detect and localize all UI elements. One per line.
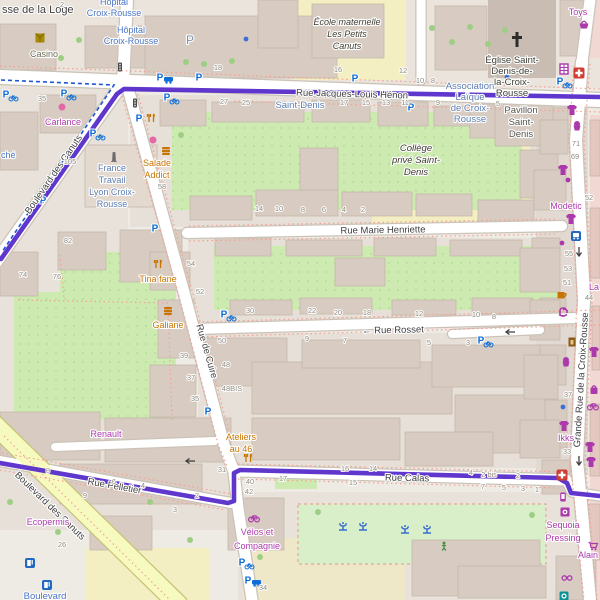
bakery-icon [574, 121, 581, 131]
building [215, 238, 271, 256]
map-label: Pavillon [504, 105, 537, 116]
building [286, 240, 362, 256]
map-label: France [98, 163, 126, 173]
map-label: Rousse [496, 88, 528, 99]
house-number: 8 [431, 76, 435, 85]
parking-icon: P [196, 73, 203, 84]
house-number: 40 [246, 477, 254, 486]
tree [76, 37, 82, 43]
house-number: 12 [415, 309, 423, 318]
house-number: 22 [308, 306, 316, 315]
house-number: 2 [195, 491, 199, 500]
building [592, 306, 600, 370]
house-number: 6 [322, 205, 326, 214]
svg-text:P: P [136, 114, 143, 125]
bakery-icon [563, 357, 570, 367]
map-label: Travail [99, 175, 126, 185]
tree [178, 132, 184, 138]
map-label: Denis-de- [491, 66, 532, 77]
house-number: 8 [46, 466, 50, 475]
house-number: 3 [466, 338, 470, 347]
house-number: 14 [255, 204, 263, 213]
house-number: 4 [342, 205, 346, 214]
tree [449, 39, 455, 45]
map-label: Denis [509, 129, 534, 140]
building [590, 120, 600, 176]
beauty-shop-icon [59, 104, 66, 111]
house-number: 42 [245, 487, 253, 496]
house-number: 105 [64, 157, 77, 166]
house-number: 5 [427, 338, 431, 347]
house-number: 15 [362, 98, 370, 107]
building [300, 148, 338, 190]
svg-text:P: P [205, 407, 212, 418]
map-label: Croix-Rousse [104, 36, 159, 46]
map-label: Les Petits [327, 29, 367, 39]
house-number: 34 [259, 583, 267, 592]
house-number: 5 [496, 99, 500, 108]
fast-food-icon [162, 147, 170, 155]
tree [257, 554, 263, 560]
building [472, 298, 532, 314]
house-number: 74 [19, 270, 27, 279]
map-label: Rousse [454, 114, 486, 125]
tree [485, 41, 491, 47]
tree [7, 499, 13, 505]
house-number: 4 [469, 468, 473, 477]
house-number: 2 [516, 471, 520, 480]
building [252, 362, 452, 414]
house-number: 10 [416, 76, 424, 85]
tree [229, 58, 235, 64]
tree [315, 509, 321, 515]
house-number: 33 [563, 447, 571, 456]
map-label: Hôpital [100, 0, 128, 7]
traffic-signal-icon [133, 99, 137, 108]
map-label: Ikks [558, 433, 575, 443]
map-label: Salade [143, 158, 171, 168]
charging-station-icon [25, 558, 35, 568]
parking-icon: P [152, 224, 159, 235]
house-number: 44 [585, 293, 593, 302]
tree [467, 24, 473, 30]
house-number: 31 [218, 465, 226, 474]
furniture-shop-icon [560, 64, 568, 74]
building [230, 300, 292, 315]
house-number: 9 [436, 98, 440, 107]
map-label: École maternelle [313, 17, 380, 27]
building [0, 112, 38, 170]
house-number: 35 [38, 94, 46, 103]
tree [183, 59, 189, 65]
beauty-shop-icon [150, 137, 157, 144]
fast-food-icon [164, 307, 172, 315]
tree [55, 529, 61, 535]
tree [58, 55, 64, 61]
house-number: 53 [564, 264, 572, 273]
svg-text:P: P [152, 224, 159, 235]
recycling-icon [560, 592, 569, 600]
bus-stop-icon [571, 231, 581, 241]
map-label: la-Croix- [494, 77, 530, 88]
building [335, 258, 385, 286]
map-label: Ecopermis [27, 517, 70, 527]
service-lane-east [452, 330, 540, 334]
house-number: 2 [361, 205, 365, 214]
house-number: 50 [218, 336, 226, 345]
map-label: Addict [144, 170, 170, 180]
house-number: 25 [242, 98, 250, 107]
house-number: 26 [58, 540, 66, 549]
map-label: Alain R [578, 550, 600, 560]
map-label: Croix-Rousse [87, 8, 142, 18]
house-number: 5 [502, 483, 506, 492]
map-label: Compagnie [234, 541, 280, 551]
building [520, 248, 560, 292]
house-number: 11 [401, 98, 409, 107]
house-number: 9 [305, 334, 309, 343]
laundry-icon [561, 508, 570, 517]
building [302, 340, 420, 368]
map-label: Rousse [97, 199, 128, 209]
house-number: 3 [521, 484, 525, 493]
house-number: 16 [334, 65, 342, 74]
poi-dot-icon [244, 37, 249, 42]
map-label: Canuts [333, 41, 362, 51]
shop-dot-icon [560, 241, 565, 246]
building [0, 24, 56, 70]
map-label: privé Saint- [391, 155, 440, 166]
map-label: Casino [30, 49, 58, 59]
house-number: 76 [53, 272, 61, 281]
map-label: Hôpital [117, 25, 145, 35]
map-label: Pressing [545, 533, 580, 543]
tree [429, 25, 435, 31]
svg-text:P: P [245, 576, 252, 587]
map-label: Carlance [45, 117, 81, 127]
map-label: Denis [404, 167, 429, 178]
map-label: Rue Calas [385, 473, 430, 485]
map-label: au 46 [230, 444, 253, 454]
map-label: P [186, 33, 194, 47]
building [342, 192, 412, 216]
pharmacy-icon [574, 68, 585, 79]
building [435, 6, 487, 70]
house-number: 35 [191, 394, 199, 403]
house-number: 16 [341, 464, 349, 473]
tree [201, 61, 207, 67]
house-number: 10 [275, 204, 283, 213]
house-number: 3 [173, 505, 177, 514]
building [258, 0, 298, 48]
parking-icon: P [136, 114, 143, 125]
house-number: 10 [472, 310, 480, 319]
building [416, 194, 472, 216]
tree [529, 512, 535, 518]
building [252, 418, 400, 460]
house-number: 13 [382, 98, 390, 107]
svg-text:P: P [352, 74, 359, 85]
house-number: 58 [158, 182, 166, 191]
map-label: Sequoia [546, 520, 579, 530]
house-number: 8 [301, 205, 305, 214]
tree [147, 499, 153, 505]
house-number: 12 [399, 66, 407, 75]
house-number: 48BIS [222, 384, 242, 393]
map-label: Laïque [455, 92, 484, 103]
house-number: 27 [220, 97, 228, 106]
shop-door-icon [569, 338, 576, 347]
building [190, 196, 252, 220]
house-number: 52 [196, 287, 204, 296]
map-label: Galiane [152, 320, 183, 330]
house-number: 39 [180, 351, 188, 360]
house-number: 30 [246, 306, 254, 315]
house-number: 37 [564, 390, 572, 399]
poi-dot-icon [561, 405, 566, 410]
svg-text:P: P [157, 73, 164, 84]
house-number: 9 [83, 491, 87, 500]
map-label: de Croix- [451, 103, 490, 114]
building [520, 420, 560, 458]
shop-dot-icon [566, 178, 571, 183]
building [145, 16, 337, 78]
map-label: Toys [569, 7, 588, 17]
house-number: 17 [279, 474, 287, 483]
house-number: 51 [563, 278, 571, 287]
map-label: Ateliers [226, 432, 257, 442]
house-number: 18 [214, 63, 222, 72]
parking-icon: P [352, 74, 359, 85]
building [458, 566, 546, 598]
pharmacy-icon [557, 470, 568, 481]
map-label: Boulevard [24, 591, 67, 600]
building [450, 240, 522, 256]
house-number: 7 [343, 336, 347, 345]
house-number: 55 [565, 249, 573, 258]
map-label: Collège [400, 143, 432, 154]
tree [502, 27, 508, 33]
house-number: 14 [369, 464, 377, 473]
building [392, 300, 456, 315]
map-label: Tina fane [139, 274, 176, 284]
house-number: 54 [187, 259, 195, 268]
house-number: 82 [64, 236, 72, 245]
map-label: Rue Marie Henriette [340, 224, 425, 236]
house-number: 1 [535, 485, 539, 494]
building [524, 355, 558, 399]
tree [187, 537, 193, 543]
charging-station-icon [42, 580, 52, 590]
house-number: 48 [222, 360, 230, 369]
building [590, 208, 600, 278]
house-number: 15 [349, 478, 357, 487]
map-label: ← Rue Rosset [362, 324, 424, 336]
map-label: Renault [90, 429, 122, 439]
house-number: 37 [187, 373, 195, 382]
building [160, 100, 206, 126]
map-label: Saint-Denis [275, 100, 324, 111]
house-number: 20 [334, 308, 342, 317]
map-svg: PPPPPPPPPPPPPPPPPsse de la LogeHôpitalCr… [0, 0, 600, 600]
house-number: 8 [492, 312, 496, 321]
supermarket-icon [36, 34, 45, 43]
house-number: 7 [481, 482, 485, 491]
parking-icon: P [205, 407, 212, 418]
house-number: 4 [141, 481, 145, 490]
house-number: 2 [60, 0, 64, 9]
building [540, 120, 568, 154]
house-number: 6 [112, 477, 116, 486]
map-label: La B [589, 282, 600, 292]
map-canvas[interactable]: PPPPPPPPPPPPPPPPPsse de la LogeHôpitalCr… [0, 0, 600, 600]
map-label: Saint- [509, 117, 534, 128]
phone-shop-icon [560, 493, 566, 502]
map-label: Église Saint- [485, 55, 538, 66]
map-label: Association [446, 81, 495, 92]
map-label: Modetic [550, 201, 582, 211]
house-number: 52 [585, 193, 593, 202]
traffic-signal-icon [118, 63, 122, 72]
building [374, 238, 436, 256]
map-label: Vélos et [241, 527, 274, 537]
house-number: 2 bis [481, 470, 497, 479]
svg-text:P: P [196, 73, 203, 84]
house-number: 71 [572, 139, 580, 148]
house-number: 18 [363, 308, 371, 317]
map-label: Lyon Croix- [89, 187, 135, 197]
house-number: 17 [340, 98, 348, 107]
house-number: 69 [571, 152, 579, 161]
map-label: ché [1, 150, 16, 160]
building [405, 432, 493, 466]
